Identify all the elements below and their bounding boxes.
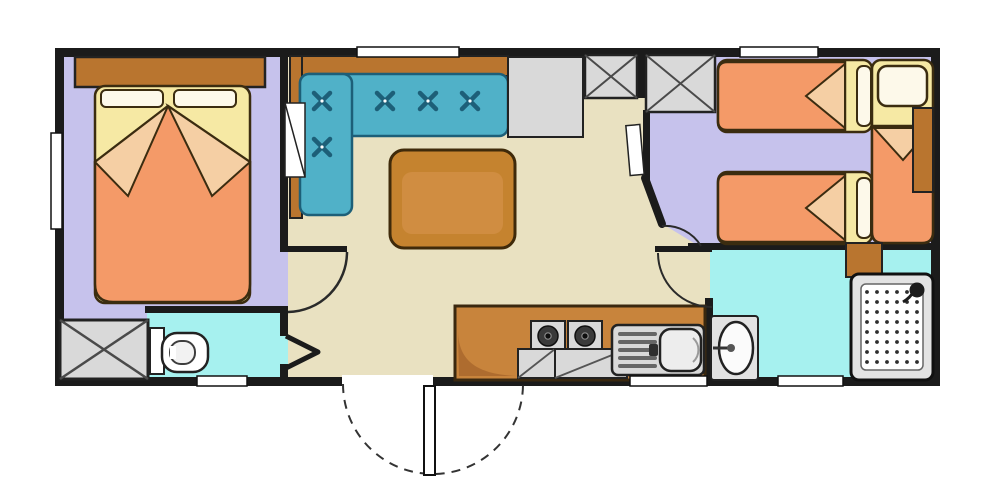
window-bottom-toilet bbox=[197, 376, 247, 386]
sink-tap bbox=[649, 344, 658, 356]
window-left-master-bedroom bbox=[51, 133, 62, 229]
pillow-right bbox=[174, 90, 236, 107]
bedside-cabinet bbox=[913, 108, 933, 192]
coffee-table bbox=[390, 150, 515, 248]
wall-wardrobe-divider bbox=[637, 52, 646, 98]
kitchen bbox=[455, 306, 705, 380]
master-bedroom-door-leaf bbox=[286, 246, 347, 252]
wc-bowl-inner-gap bbox=[170, 346, 176, 359]
window-top-living bbox=[357, 47, 459, 57]
washbasin bbox=[711, 316, 758, 380]
entrance-door-leaf bbox=[424, 386, 435, 475]
wall-toilet-top bbox=[145, 306, 288, 313]
storage-cabinet bbox=[508, 57, 583, 137]
washbasin-tap-knob bbox=[727, 344, 735, 352]
pillow bbox=[878, 66, 927, 106]
pillow-left bbox=[101, 90, 163, 107]
wall-hall-shower bbox=[655, 246, 712, 252]
pillow bbox=[857, 178, 871, 238]
entrance bbox=[342, 375, 523, 475]
shower-tray-dots bbox=[864, 288, 920, 367]
coffee-table-highlight bbox=[402, 172, 503, 234]
wall-toilet-right-upper bbox=[280, 306, 288, 336]
shower-room-cabinet bbox=[846, 243, 882, 277]
headboard-shelf bbox=[75, 57, 265, 87]
floor-plan-page bbox=[0, 0, 1000, 501]
burner-right-center bbox=[582, 333, 588, 339]
floor-plan-svg bbox=[0, 0, 1000, 501]
corner-wardrobe bbox=[60, 320, 148, 379]
burner-left-center bbox=[545, 333, 551, 339]
entrance-opening bbox=[342, 375, 433, 388]
pillow bbox=[857, 66, 871, 126]
window-bottom-shower-room bbox=[778, 376, 843, 386]
single-bed-bottom bbox=[718, 172, 872, 244]
wardrobe-2 bbox=[646, 55, 715, 112]
sink-basin bbox=[660, 329, 701, 371]
window-bottom-kitchen bbox=[630, 376, 707, 386]
window-top-twin-bedroom bbox=[740, 47, 818, 57]
toilet-room bbox=[150, 328, 208, 374]
shower bbox=[851, 274, 933, 380]
kitchen-sink bbox=[612, 325, 704, 375]
wardrobe-1 bbox=[585, 55, 637, 98]
shower-head-icon bbox=[910, 283, 925, 298]
single-bed-top bbox=[718, 60, 872, 132]
under-counter-units bbox=[518, 349, 627, 378]
